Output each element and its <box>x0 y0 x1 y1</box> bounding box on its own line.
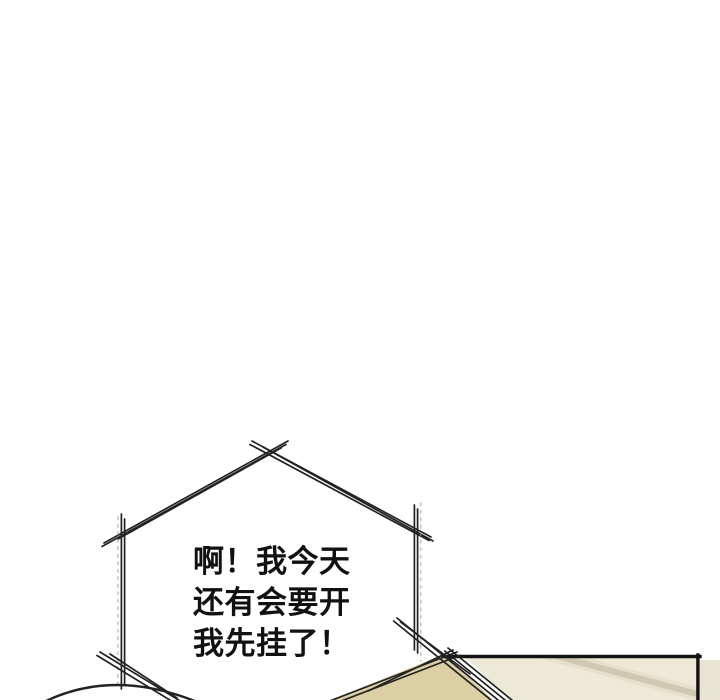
comic-art-canvas <box>0 0 720 700</box>
panel-right-margin-fill <box>700 660 720 700</box>
bubble-edge-upper-left <box>102 441 288 547</box>
speech-line-3: 我先挂了！ <box>193 623 351 664</box>
speech-line-2: 还有会要开 <box>193 582 351 623</box>
bubble-edge-upper-right <box>250 441 433 541</box>
speech-bubble-text: 啊！我今天 还有会要开 我先挂了！ <box>193 541 351 664</box>
bubble-edge-bottom-left <box>97 652 190 700</box>
sketch-stroke <box>118 448 281 539</box>
comic-page: 啊！我今天 还有会要开 我先挂了！ <box>0 0 720 700</box>
sketch-stroke <box>263 447 433 541</box>
speech-line-1: 啊！我今天 <box>193 541 351 582</box>
sketch-stroke <box>250 445 429 541</box>
sketch-stroke <box>104 441 288 543</box>
